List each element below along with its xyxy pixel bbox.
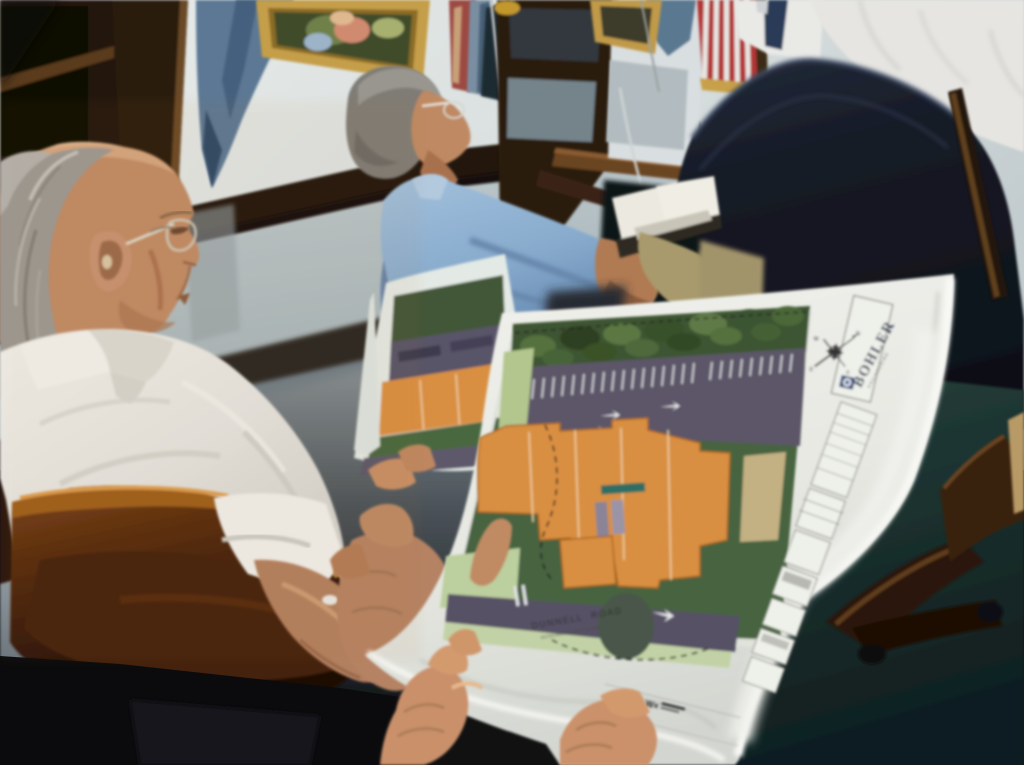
svg-text:N: N xyxy=(855,331,860,338)
